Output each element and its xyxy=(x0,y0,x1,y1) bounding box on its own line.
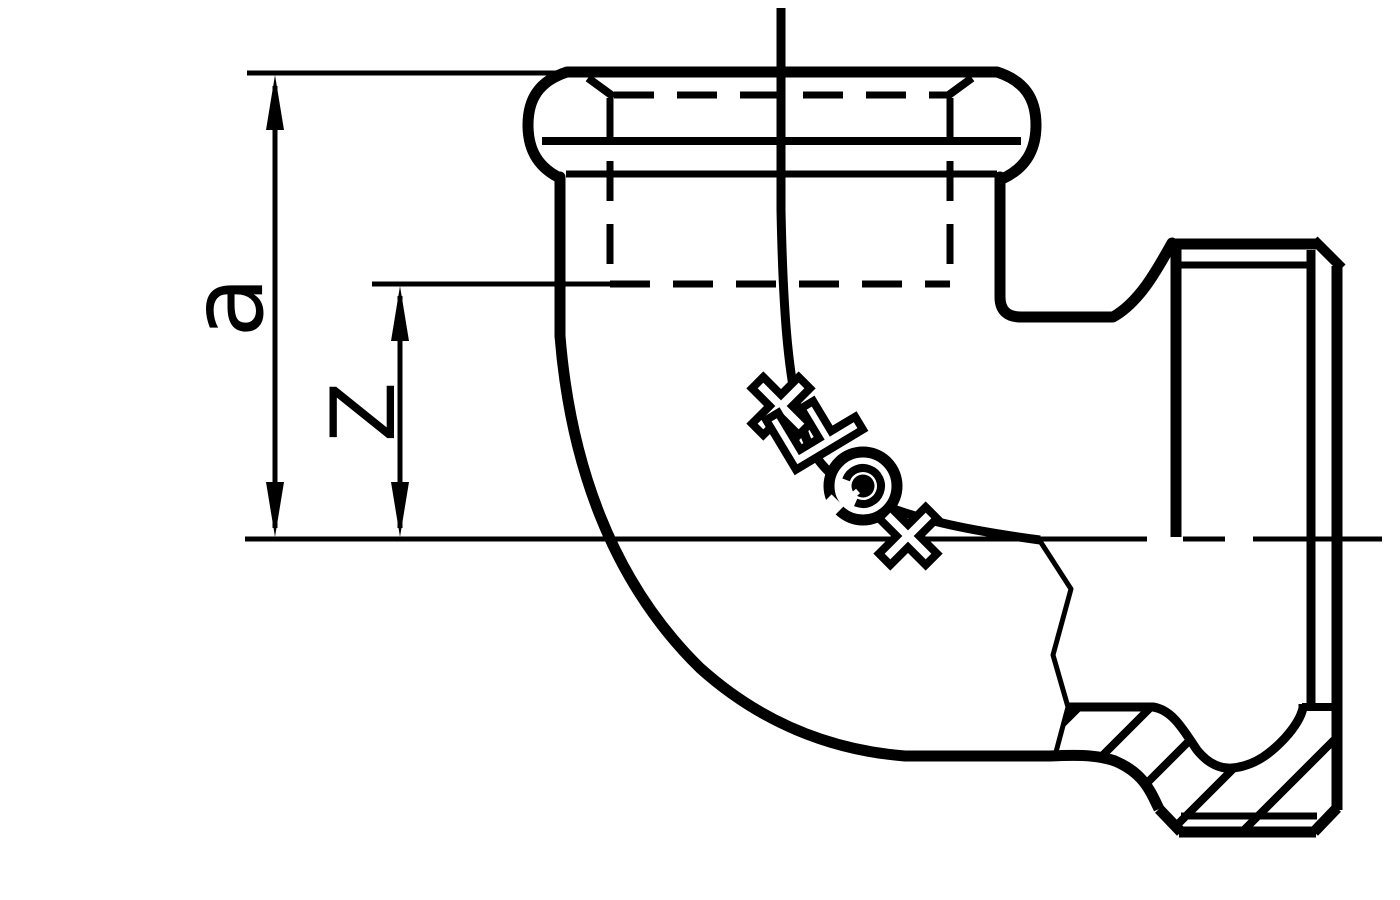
section-outer-wall-profile xyxy=(1050,755,1159,809)
arrowhead-a-bottom xyxy=(266,482,284,537)
elbow-fitting-diagram: a Z xyxy=(0,0,1400,900)
technical-drawing-elbow-fitting: a Z xyxy=(0,0,1400,900)
right-socket-chamfer-top-right xyxy=(1314,240,1342,268)
thread-chamfer-right xyxy=(946,78,972,97)
dimension-label-a: a xyxy=(169,276,286,337)
thread-chamfer-left xyxy=(588,78,614,97)
fitting-outline xyxy=(528,8,1342,832)
arrowhead-z-bottom xyxy=(391,482,409,537)
arrowhead-z-top xyxy=(391,286,409,341)
arm-top-silhouette xyxy=(1000,177,1172,317)
arrowhead-a-top xyxy=(266,75,284,130)
gf-logo xyxy=(734,359,954,582)
dimension-label-z: Z xyxy=(312,382,415,442)
